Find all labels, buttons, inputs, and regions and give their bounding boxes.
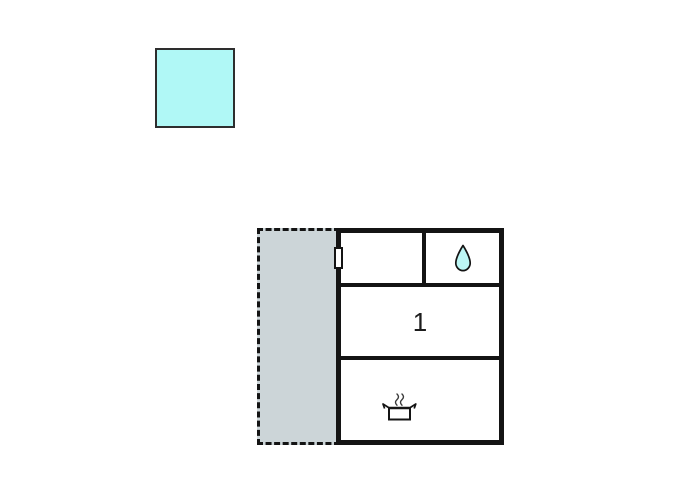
room-kitchen: [341, 360, 499, 440]
building-interior: 1: [341, 233, 499, 440]
floor-plan-canvas: 1: [0, 0, 700, 500]
cooking-pot-icon: [379, 393, 417, 421]
room-number-label: 1: [413, 309, 427, 335]
building-outline: 1: [336, 228, 504, 445]
water-drop-icon: [454, 244, 472, 272]
legend-color-swatch: [155, 48, 235, 128]
room-bathroom: [426, 233, 499, 283]
door-window-marker: [334, 247, 343, 269]
room-top-left: [341, 233, 422, 283]
terrace-dashed-area: [257, 228, 340, 445]
room-1: 1: [341, 287, 499, 356]
